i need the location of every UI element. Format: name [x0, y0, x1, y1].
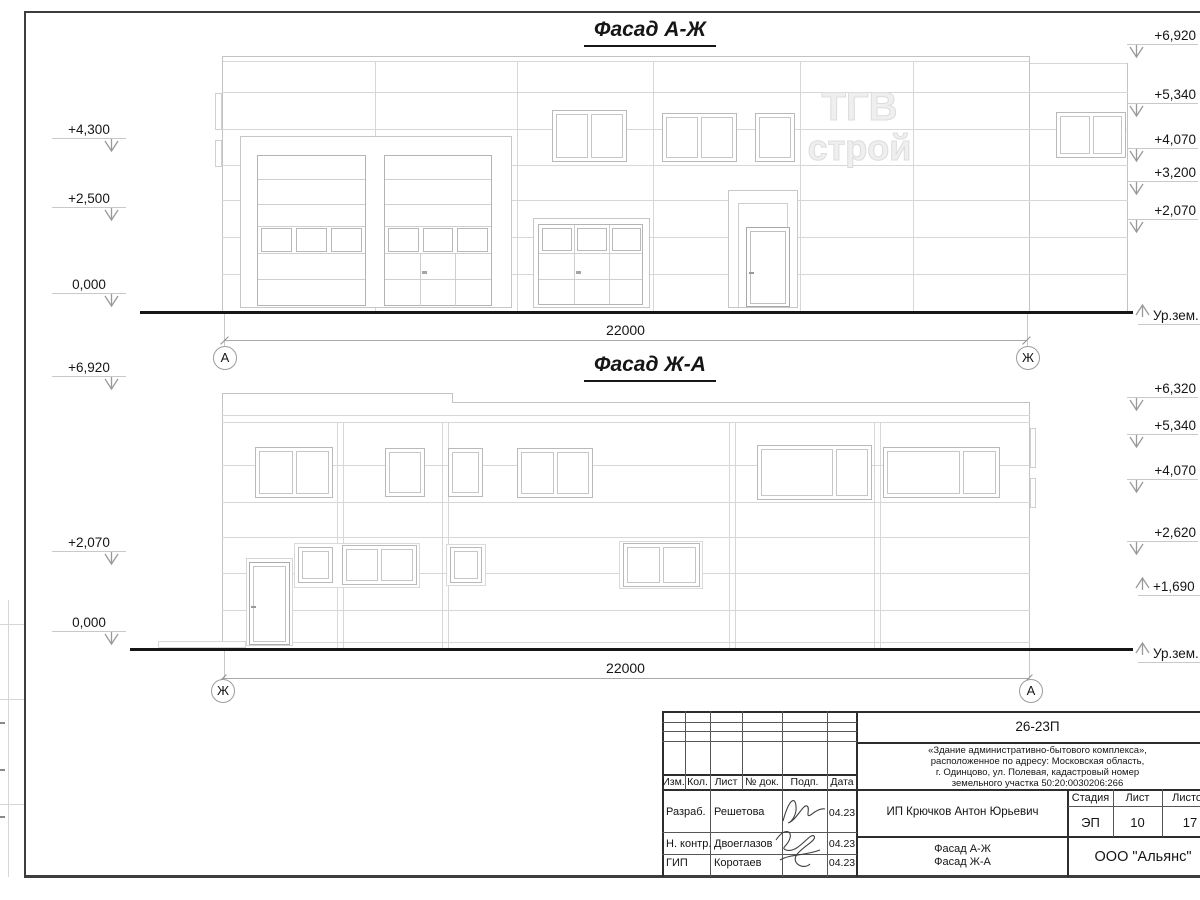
stamp-date: 04.23	[827, 807, 857, 819]
sheets-value: 17	[1162, 815, 1200, 830]
edge-artifact-dash	[0, 769, 5, 771]
elevation-mark: 0,000	[52, 277, 126, 294]
stamp-name: Двоеглазов	[714, 838, 772, 850]
elevation-marker-down-icon	[1128, 542, 1145, 556]
signature	[779, 794, 827, 828]
project-description-line: г. Одинцово, ул. Полевая, кадастровый но…	[859, 767, 1200, 778]
elevation-mark: 0,000	[52, 615, 126, 632]
door-panel-line	[385, 253, 491, 254]
drawing-sheet: Фасад А-Ж ТГВ строй	[0, 0, 1200, 900]
window	[450, 547, 482, 583]
downpipe-detail	[1030, 478, 1036, 508]
door-handle	[576, 271, 581, 274]
elevation-marker-down-icon	[103, 552, 120, 566]
window	[448, 448, 483, 497]
garage-door	[384, 155, 492, 306]
ground-level-mark: Ур.зем.	[1138, 646, 1200, 663]
stage-label: Стадия	[1068, 792, 1113, 804]
wicket-door-line	[455, 253, 456, 306]
edge-artifact-line	[0, 804, 24, 805]
building-outline	[1030, 63, 1128, 64]
door-handle	[251, 606, 256, 608]
ground-line	[130, 648, 1133, 651]
stamp-role: Н. контр.	[666, 838, 711, 850]
window-pane	[591, 114, 623, 158]
ramp-step	[158, 641, 246, 648]
axis-circle: Ж	[1016, 346, 1040, 370]
window-pane	[521, 452, 554, 494]
edge-artifact-line	[0, 624, 24, 625]
panel-joint	[874, 422, 875, 648]
parapet-line	[222, 61, 1030, 62]
door-window-pane	[261, 228, 292, 252]
elevation-marker-down-icon	[103, 632, 120, 646]
window	[255, 447, 333, 498]
frame-left	[24, 11, 26, 878]
ground-level-mark: Ур.зем.	[1138, 308, 1200, 325]
window-pane	[389, 452, 421, 493]
elevation-marker-down-icon	[1128, 480, 1145, 494]
window-pane	[1060, 116, 1090, 154]
elevation-mark: +3,200	[1127, 165, 1198, 182]
pilaster-detail	[215, 93, 222, 130]
frame-bottom	[24, 875, 1200, 878]
elevation-marker-down-icon	[1128, 104, 1145, 118]
door-panel-line	[385, 179, 491, 180]
elevation-mark: +6,920	[1127, 28, 1198, 45]
window	[1056, 112, 1126, 158]
stamp-role: Разраб.	[666, 806, 706, 818]
window-pane	[887, 451, 960, 494]
elevation-mark: +5,340	[1127, 87, 1198, 104]
window-pane	[666, 117, 698, 158]
axis-extension	[1027, 314, 1028, 346]
dimension-line	[224, 340, 1027, 341]
window-pane	[627, 547, 660, 583]
facade-1-title: Фасад А-Ж	[495, 18, 805, 47]
door-window-pane	[457, 228, 488, 252]
stamp-line	[1068, 806, 1200, 807]
panel-joint	[337, 422, 338, 648]
window-pane	[557, 452, 590, 494]
window-pane	[259, 451, 293, 494]
elevation-marker-down-icon	[103, 294, 120, 308]
door-panel-line	[385, 204, 491, 205]
wicket-door-line	[420, 253, 421, 306]
stamp-col-kol: Кол.	[685, 776, 710, 788]
stamp-border	[662, 711, 664, 877]
door-panel-line	[385, 279, 491, 280]
stamp-col-date: Дата	[827, 776, 857, 788]
window-pane	[963, 451, 996, 494]
building-outline	[452, 402, 1030, 403]
window	[517, 448, 593, 498]
siding-line	[222, 92, 1128, 93]
dimension: 22000	[224, 322, 1027, 341]
signature	[770, 826, 828, 874]
stamp-line	[710, 711, 711, 877]
dimension: 22000	[222, 660, 1029, 679]
door-window-pane	[612, 228, 641, 251]
entrance-door	[746, 227, 790, 307]
panel-joint	[729, 422, 730, 648]
garage-portal	[240, 136, 512, 308]
axis-circle: А	[213, 346, 237, 370]
stamp-date: 04.23	[827, 857, 857, 869]
elevation-mark: +2,070	[1127, 203, 1198, 220]
window	[298, 547, 333, 583]
window	[757, 445, 872, 500]
elevation-marker-down-icon	[1128, 45, 1145, 59]
elevation-marker-down-icon	[1128, 149, 1145, 163]
door-panel-line	[258, 179, 365, 180]
axis-circle: А	[1019, 679, 1043, 703]
window-pane	[663, 547, 696, 583]
stamp-role: ГИП	[666, 857, 688, 869]
window-pane	[452, 452, 479, 493]
window-pane	[302, 551, 329, 579]
window	[623, 543, 700, 587]
edge-artifact-line	[0, 699, 24, 700]
door-window-pane	[388, 228, 419, 252]
window-pane	[454, 551, 478, 579]
stamp-col-list: Лист	[710, 776, 742, 788]
window	[552, 110, 627, 162]
elevation-marker-down-icon	[1128, 182, 1145, 196]
panel-joint	[517, 61, 518, 311]
entrance-portal	[728, 190, 798, 308]
door-panel-line	[385, 226, 491, 227]
garage-portal	[533, 218, 650, 308]
window-pane	[701, 117, 733, 158]
window-pane	[759, 117, 791, 158]
door-window-pane	[423, 228, 454, 252]
sheet-title-line: Фасад А-Ж	[857, 843, 1068, 855]
door-handle	[422, 271, 427, 274]
stamp-date: 04.23	[827, 838, 857, 850]
project-description-line: земельного участка 50:20:0030206:266	[859, 778, 1200, 789]
axis-label: А	[1027, 683, 1036, 698]
axis-label: Ж	[217, 683, 229, 698]
pilaster-detail	[215, 140, 222, 167]
doc-number: 26-23П	[857, 719, 1200, 734]
portal-reveal-line	[738, 203, 788, 204]
door-panel-line	[258, 226, 365, 227]
watermark-line2: строй	[792, 129, 927, 168]
elevation-mark: +1,690	[1138, 579, 1200, 596]
parapet-line	[222, 415, 1030, 416]
elevation-mark: +4,070	[1127, 132, 1198, 149]
window-pane	[556, 114, 588, 158]
door-handle	[749, 272, 754, 274]
sheets-label: Листов	[1162, 792, 1200, 804]
stamp-border	[857, 742, 1200, 744]
stamp-border	[857, 836, 1200, 838]
door-panel-line	[609, 225, 610, 304]
axis-label: А	[221, 350, 230, 365]
door-window-pane	[296, 228, 327, 252]
elevation-marker-down-icon	[1128, 435, 1145, 449]
door-panel-line	[258, 204, 365, 205]
entrance-door	[249, 562, 290, 645]
elevation-marker-up-icon	[1134, 641, 1151, 655]
elevation-marker-down-icon	[1128, 220, 1145, 234]
client-name: ИП Крючков Антон Юрьевич	[857, 806, 1068, 818]
elevation-marker-down-icon	[103, 208, 120, 222]
window-pane	[296, 451, 330, 494]
edge-artifact-dash	[0, 722, 5, 724]
elevation-marker-down-icon	[103, 377, 120, 391]
watermark-line1: ТГВ	[792, 86, 927, 129]
window	[662, 113, 737, 162]
door-panel-line	[258, 253, 365, 254]
facade-2-title: Фасад Ж-А	[495, 353, 805, 382]
building-outline	[222, 56, 223, 311]
elevation-mark: +2,620	[1127, 525, 1198, 542]
panel-joint	[735, 422, 736, 648]
company-name: ООО "Альянс"	[1068, 849, 1200, 865]
axis-circle: Ж	[211, 679, 235, 703]
stamp-col-izm: Изм.	[662, 776, 685, 788]
elevation-mark: +6,320	[1127, 381, 1198, 398]
garage-door	[257, 155, 366, 306]
window-pane	[381, 549, 413, 581]
ground-line	[140, 311, 1133, 314]
dimension-label: 22000	[224, 322, 1027, 338]
stamp-name: Решетова	[714, 806, 764, 818]
door-panel-line	[539, 253, 642, 254]
building-outline	[1029, 56, 1030, 311]
elevation-marker-down-icon	[103, 139, 120, 153]
door-window-pane	[577, 228, 607, 251]
sheet-title-line: Фасад Ж-А	[857, 856, 1068, 868]
window	[342, 545, 417, 585]
window	[385, 448, 425, 497]
door-leaf	[253, 566, 286, 642]
building-outline	[222, 393, 453, 394]
window-pane	[761, 449, 833, 496]
elevation-mark: +5,340	[1127, 418, 1198, 435]
elevation-mark: +6,920	[52, 360, 126, 377]
elevation-marker-up-icon	[1134, 576, 1151, 590]
dimension-label: 22000	[222, 660, 1029, 676]
sheet-label: Лист	[1113, 792, 1162, 804]
panel-joint	[653, 61, 654, 311]
elevation-mark: +4,300	[52, 122, 126, 139]
door-panel-line	[539, 279, 642, 280]
door-window-pane	[542, 228, 572, 251]
elevation-mark: +2,500	[52, 191, 126, 208]
window-pane	[1093, 116, 1123, 154]
stamp-name: Коротаев	[714, 857, 762, 869]
window	[755, 113, 795, 162]
window-pane	[346, 549, 378, 581]
elevation-marker-up-icon	[1134, 303, 1151, 317]
elevation-mark: +4,070	[1127, 463, 1198, 480]
door-panel-line	[258, 279, 365, 280]
elevation-marker-down-icon	[1128, 398, 1145, 412]
door-panel-line	[574, 225, 575, 304]
project-description-line: расположенное по адресу: Московская обла…	[859, 756, 1200, 767]
panel-joint	[442, 422, 443, 648]
stamp-col-doc: № док.	[742, 776, 782, 788]
axis-label: Ж	[1022, 350, 1034, 365]
panel-joint	[343, 422, 344, 648]
edge-artifact-dash	[0, 816, 5, 818]
door-leaf	[750, 231, 786, 304]
downpipe-detail	[1030, 428, 1036, 468]
sheet-value: 10	[1113, 815, 1162, 830]
window	[883, 447, 1000, 498]
stamp-col-podp: Подп.	[782, 776, 827, 788]
portal-reveal-line	[738, 203, 739, 307]
project-description-line: «Здание административно-бытового комплек…	[859, 745, 1200, 756]
building-outline	[222, 56, 1030, 57]
garage-door	[538, 224, 643, 305]
elevation-mark: +2,070	[52, 535, 126, 552]
dimension-line	[222, 678, 1029, 679]
panel-joint	[880, 422, 881, 648]
window-pane	[836, 449, 868, 496]
frame-top	[24, 11, 1200, 13]
stage-value: ЭП	[1068, 815, 1113, 830]
watermark: ТГВ строй	[792, 86, 927, 168]
edge-artifact-line	[8, 600, 9, 877]
door-window-pane	[331, 228, 362, 252]
